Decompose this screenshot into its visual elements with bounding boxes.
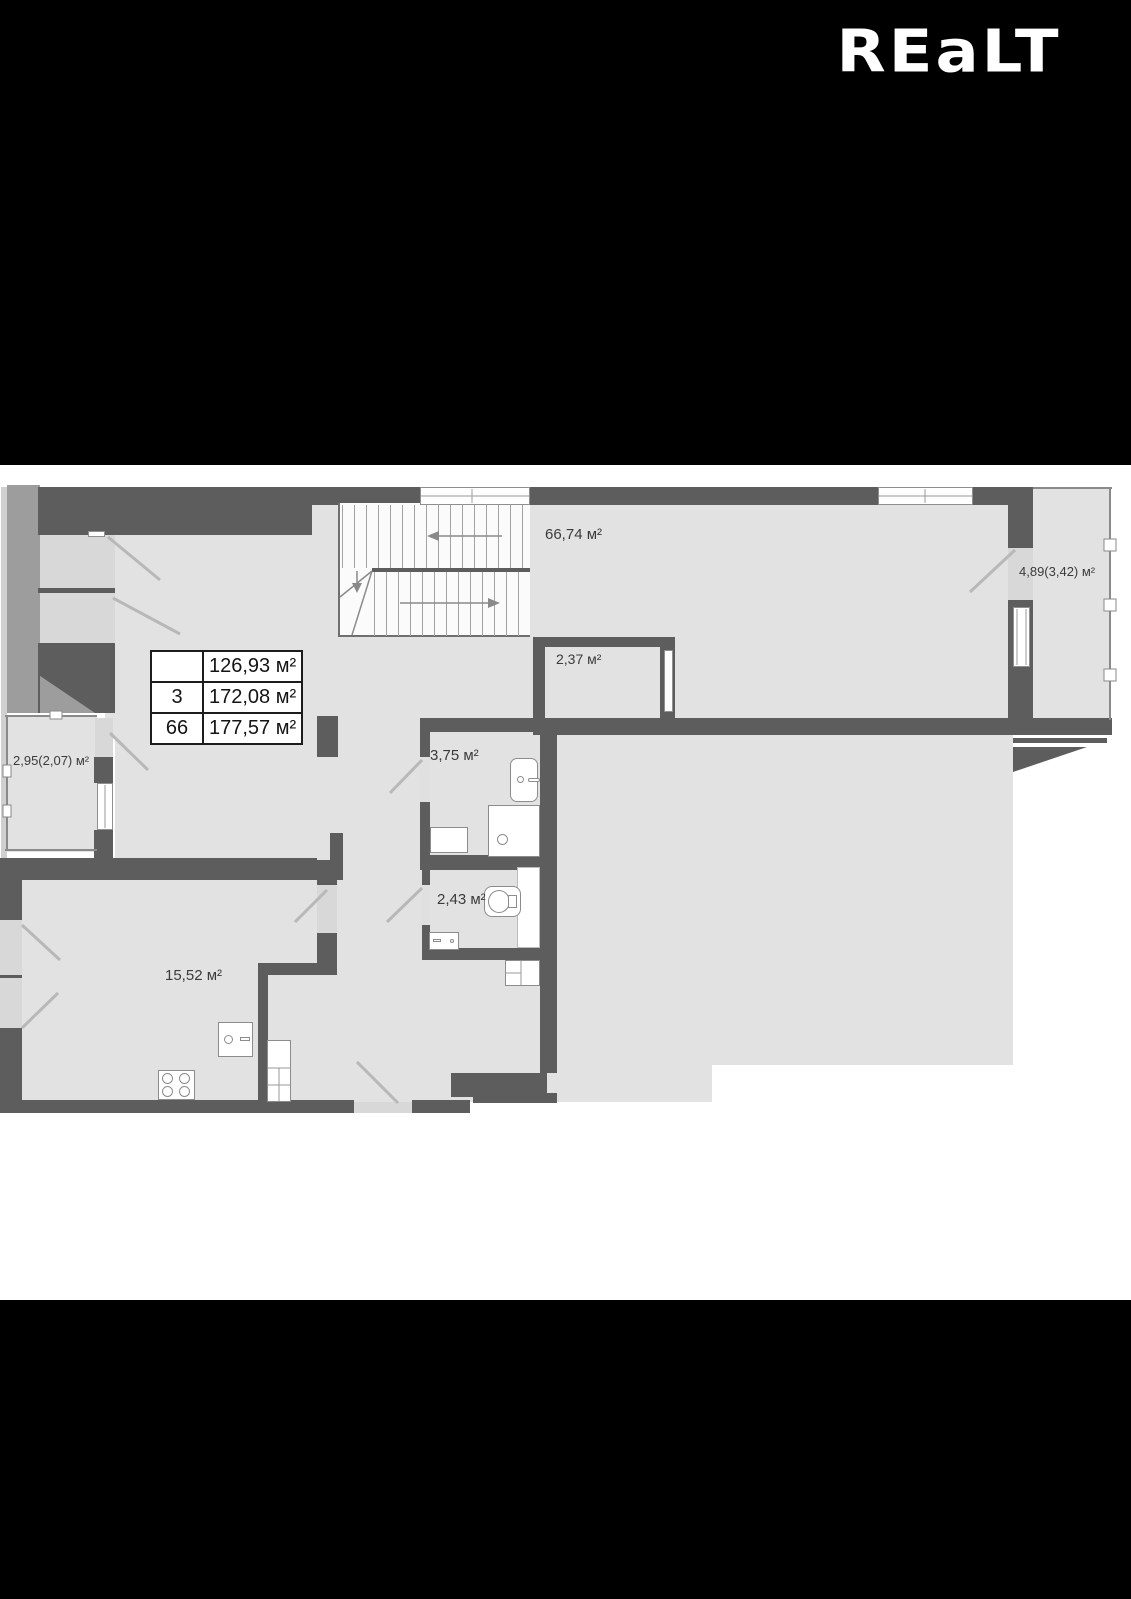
window-top-1 <box>420 487 530 505</box>
wall-bigroom-top <box>533 718 1112 735</box>
stove-burner-1 <box>162 1073 173 1084</box>
label-bathroom-area: 3,75 м² <box>430 747 479 764</box>
bath-cabinet <box>430 827 468 853</box>
label-wc-area: 2,43 м² <box>437 891 486 908</box>
area-table-val-3: 177,57 м² <box>203 713 302 744</box>
washing-machine <box>488 805 540 857</box>
wall-storage-left <box>533 637 545 725</box>
label-storage-area: 2,37 м² <box>556 651 601 667</box>
wall-kitchen-top <box>0 858 317 880</box>
floor-big-room <box>557 735 1013 1065</box>
kitchen-cabinet-column <box>267 1040 291 1102</box>
edge-strip <box>1 487 7 860</box>
label-kitchen-area: 15,52 м² <box>165 967 222 984</box>
opening-loggia-left-door <box>95 718 113 757</box>
wall-kitchen-bottom <box>0 1100 354 1113</box>
table-row: 66 177,57 м² <box>151 713 302 744</box>
wall-kitchen-right-top <box>317 860 337 885</box>
area-table-val-2: 172,08 м² <box>203 682 302 713</box>
floor-plan: 126,93 м² 3 172,08 м² 66 177,57 м² 66,74… <box>0 465 1131 1300</box>
kitchen-sink-drain <box>224 1035 233 1044</box>
window-loggia-left <box>97 783 113 830</box>
wall-right-upper <box>1008 505 1033 548</box>
floor-big-room-tongue <box>557 1065 712 1102</box>
wall-bath-top <box>420 718 540 732</box>
bath-sink-tap <box>528 778 540 782</box>
label-hall-area: 66,74 м² <box>545 526 602 543</box>
area-table-val-1: 126,93 м² <box>203 651 302 682</box>
wall-wc-left-a <box>422 870 430 885</box>
kitchen-sink-tap <box>240 1037 250 1041</box>
table-row: 3 172,08 м² <box>151 682 302 713</box>
wall-storage-top <box>533 637 675 647</box>
storage-door-strip <box>664 650 673 712</box>
door-sill-top-left <box>88 531 105 537</box>
stairs-lower-flight <box>374 572 530 636</box>
floor-lobby-opening-1 <box>38 535 115 588</box>
stove-burner-4 <box>179 1086 190 1097</box>
area-table-num-3: 66 <box>151 713 203 744</box>
page: REaLT <box>0 0 1131 1599</box>
wc-sink-tap <box>433 939 441 942</box>
wall-pillar <box>317 716 338 757</box>
service-strip <box>7 485 40 713</box>
realt-logo: REaLT <box>806 8 1092 96</box>
wall-entrance-right <box>412 1100 470 1113</box>
artifact-bottom-bar <box>473 1093 557 1103</box>
wall-loggia-left-a <box>94 757 113 783</box>
wc-sink-drain <box>450 939 454 943</box>
area-table-num-2: 3 <box>151 682 203 713</box>
area-table-num-1 <box>151 651 203 682</box>
wall-bath-left-a <box>420 732 430 757</box>
duct-shaft <box>505 960 540 986</box>
window-right-inner <box>1013 607 1030 667</box>
opening-kitchen-balc-1 <box>0 920 22 975</box>
label-loggia-right-area: 4,89(3,42) м² <box>1019 564 1095 579</box>
window-top-2 <box>878 487 973 505</box>
floor-loggia-left <box>5 715 97 852</box>
wall-kitchen-step <box>258 963 337 975</box>
opening-bath-door <box>420 757 430 802</box>
stove-burner-3 <box>162 1086 173 1097</box>
opening-kitchen-balc-2 <box>0 978 22 1028</box>
artifact-bar <box>1013 738 1107 743</box>
floor-loggia-right <box>1033 487 1110 720</box>
bath-sink-drain <box>517 776 524 783</box>
opening-entrance <box>354 1102 412 1113</box>
toilet-bowl <box>488 890 510 913</box>
washing-machine-dial <box>497 834 508 845</box>
wall-bath-left-b <box>420 802 430 857</box>
stove-burner-2 <box>179 1073 190 1084</box>
realt-logo-text: REaLT <box>836 18 1061 86</box>
wall-bigroom-left <box>540 735 557 1073</box>
stairs-upper-flight <box>342 505 530 568</box>
wall-top-c <box>973 487 1033 505</box>
wall-loggia-left-b <box>94 830 113 860</box>
wall-lobby-sliver <box>38 588 115 593</box>
wall-top-b <box>530 487 878 505</box>
table-row: 126,93 м² <box>151 651 302 682</box>
opening-wc-door <box>422 885 430 925</box>
toilet-tank <box>508 895 517 908</box>
wall-top-left-block <box>38 487 312 535</box>
opening-kitchen-door <box>317 885 337 933</box>
area-table: 126,93 м² 3 172,08 м² 66 177,57 м² <box>150 650 303 745</box>
artifact-triangle <box>1013 747 1087 772</box>
floor-lobby-opening-2 <box>38 593 115 643</box>
label-loggia-left-area: 2,95(2,07) м² <box>13 753 89 768</box>
